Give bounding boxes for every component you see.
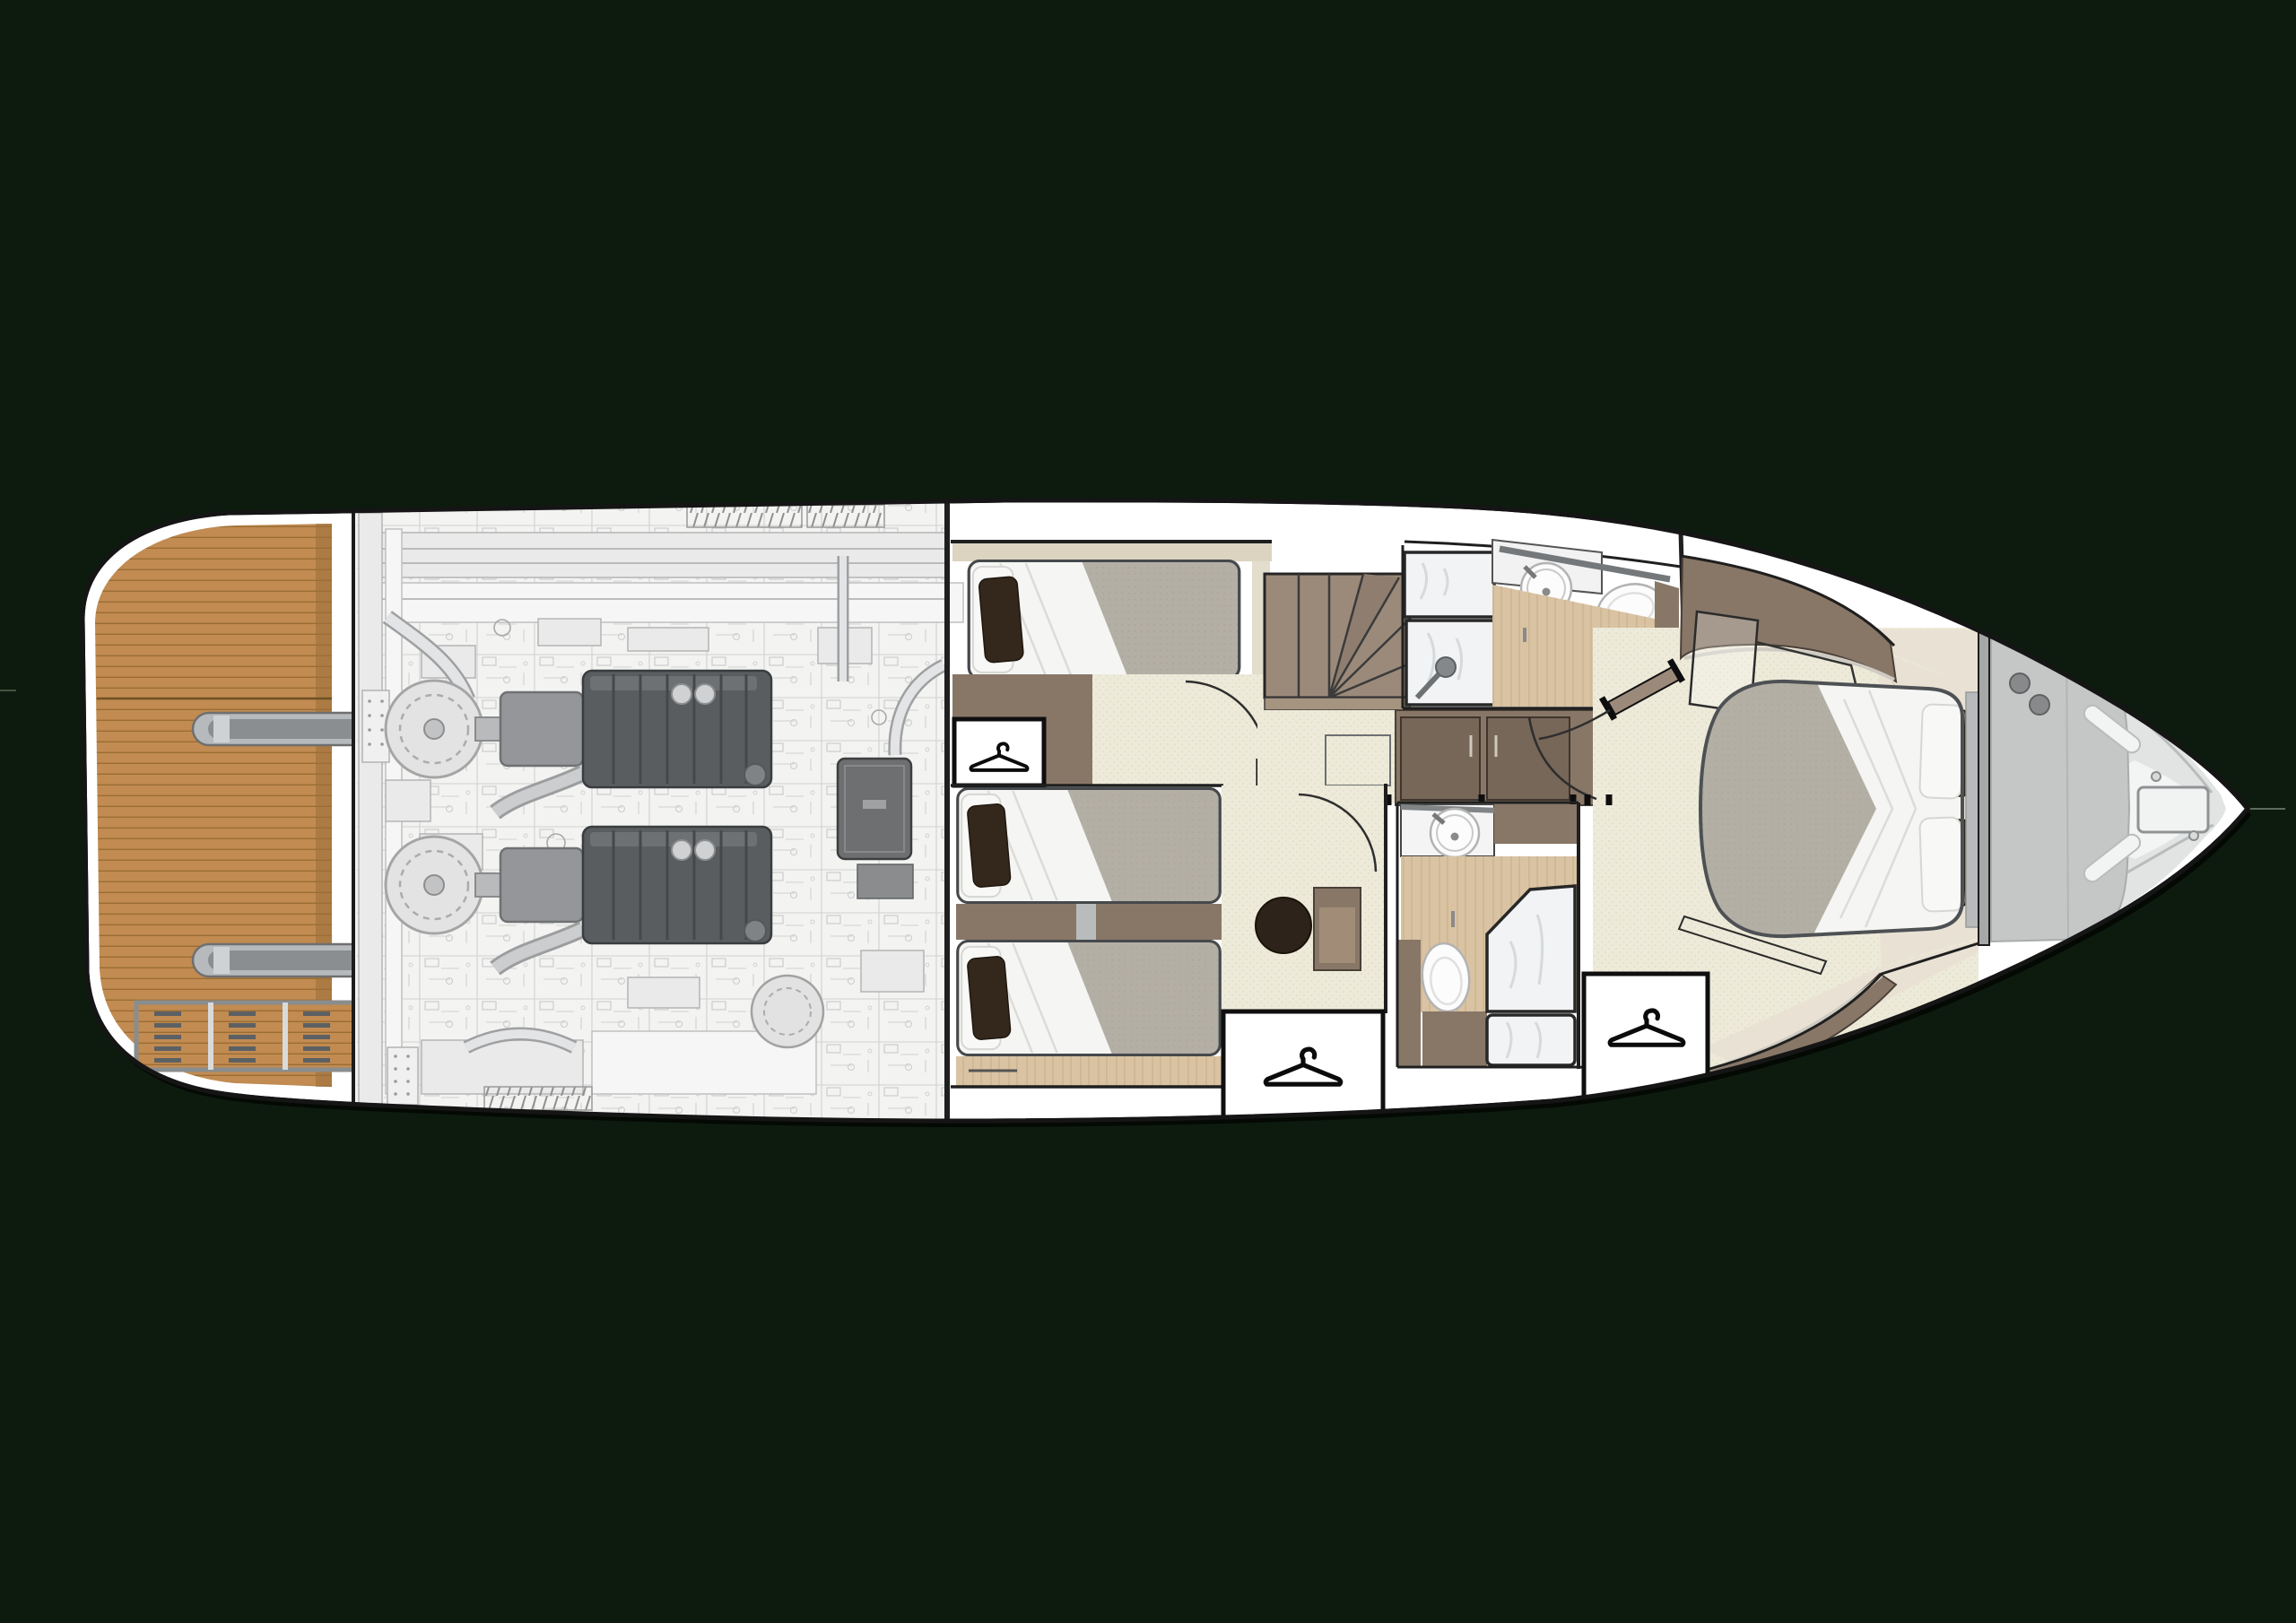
engine-room <box>355 499 963 1126</box>
bed-starboard-fwd <box>958 788 1221 902</box>
staircase <box>1265 574 1410 710</box>
master-bed <box>1700 681 1980 936</box>
deck-plan-canvas <box>0 0 2296 1623</box>
small-box <box>857 864 913 898</box>
bed-port <box>969 561 1239 679</box>
hall-door-1 <box>1401 717 1480 800</box>
deck-fitting <box>2010 673 2030 693</box>
sink-ensuite <box>1431 809 1479 857</box>
dot-plate-1 <box>387 1047 418 1105</box>
shower-head-icon <box>1436 657 1456 677</box>
bow-bulkhead <box>1979 626 1989 945</box>
generator <box>752 976 823 1047</box>
vent-hatch-top-2 <box>807 505 884 527</box>
round-pouf <box>1256 898 1311 953</box>
mid-cabin-port <box>951 542 1272 789</box>
hall-door-2 <box>1487 717 1570 800</box>
vent-hatch-top-1 <box>687 505 802 527</box>
deck-fitting <box>2030 695 2049 715</box>
anchor-hatch <box>2138 787 2208 832</box>
bed-starboard-aft <box>958 941 1221 1055</box>
shower-day <box>1405 552 1500 705</box>
bathroom-ensuite <box>1397 803 1578 1069</box>
mid-cabin-starboard <box>951 784 1386 1117</box>
